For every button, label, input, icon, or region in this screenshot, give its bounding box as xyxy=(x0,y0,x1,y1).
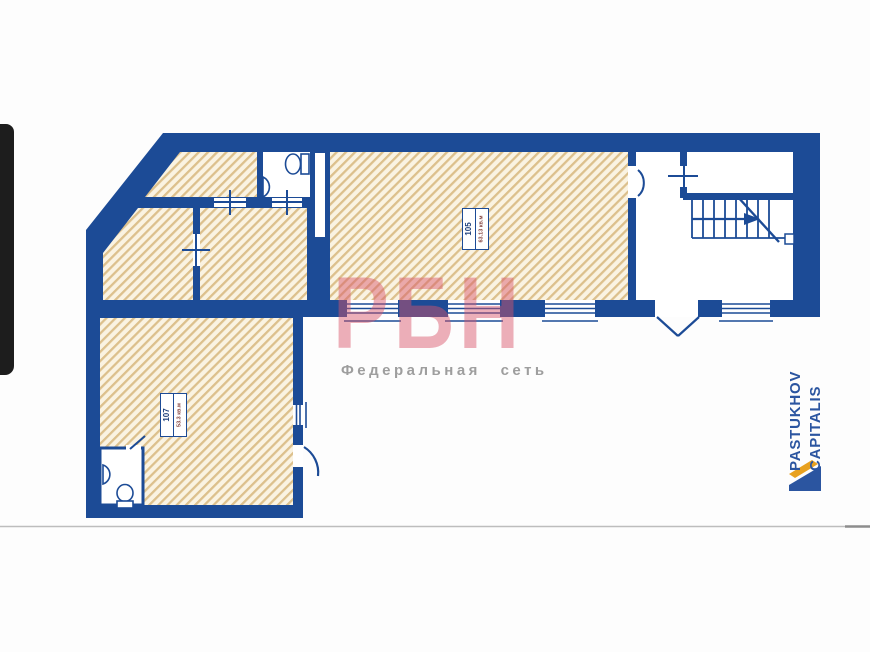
toilet-bowl-icon xyxy=(286,154,301,174)
room-middle-floor xyxy=(200,208,307,300)
entrance-door xyxy=(655,300,699,336)
agency-name: PASTUKHOV CAPITALIS xyxy=(786,351,828,471)
toilet-bowl-icon xyxy=(117,485,133,502)
duct-shaft xyxy=(314,152,326,238)
toilet-tank-icon xyxy=(301,154,309,174)
toilet-tank-icon xyxy=(117,501,133,508)
black-edge-bar xyxy=(0,124,14,375)
stairs-niche xyxy=(785,234,794,244)
screenshot-stage: 105 63.13 кв.м 107 53.3 кв.м РБН Федерал… xyxy=(0,0,870,652)
agency-name-line2: CAPITALIS xyxy=(806,351,826,471)
room-number: 107 xyxy=(163,408,171,421)
window xyxy=(445,300,503,324)
room-area-cell: 53.3 кв.м xyxy=(174,394,186,436)
room-107-window xyxy=(293,402,309,428)
room-number-cell: 105 xyxy=(463,209,476,249)
room-area: 63.13 кв.м xyxy=(479,215,485,242)
room-area-cell: 63.13 кв.м xyxy=(476,209,488,249)
agency-name-line1: PASTUKHOV xyxy=(786,351,806,471)
floor-plan xyxy=(0,0,870,652)
watermark-tagline: Федеральная сеть xyxy=(341,362,548,379)
window xyxy=(542,300,598,324)
bathroom-bottom xyxy=(100,436,145,508)
room-label-105: 105 63.13 кв.м xyxy=(462,208,489,250)
window xyxy=(719,300,773,324)
room-area: 53.3 кв.м xyxy=(177,403,183,427)
room-number: 105 xyxy=(465,222,473,235)
room-label-107: 107 53.3 кв.м xyxy=(160,393,187,437)
room-number-cell: 107 xyxy=(161,394,174,436)
window xyxy=(344,300,401,324)
